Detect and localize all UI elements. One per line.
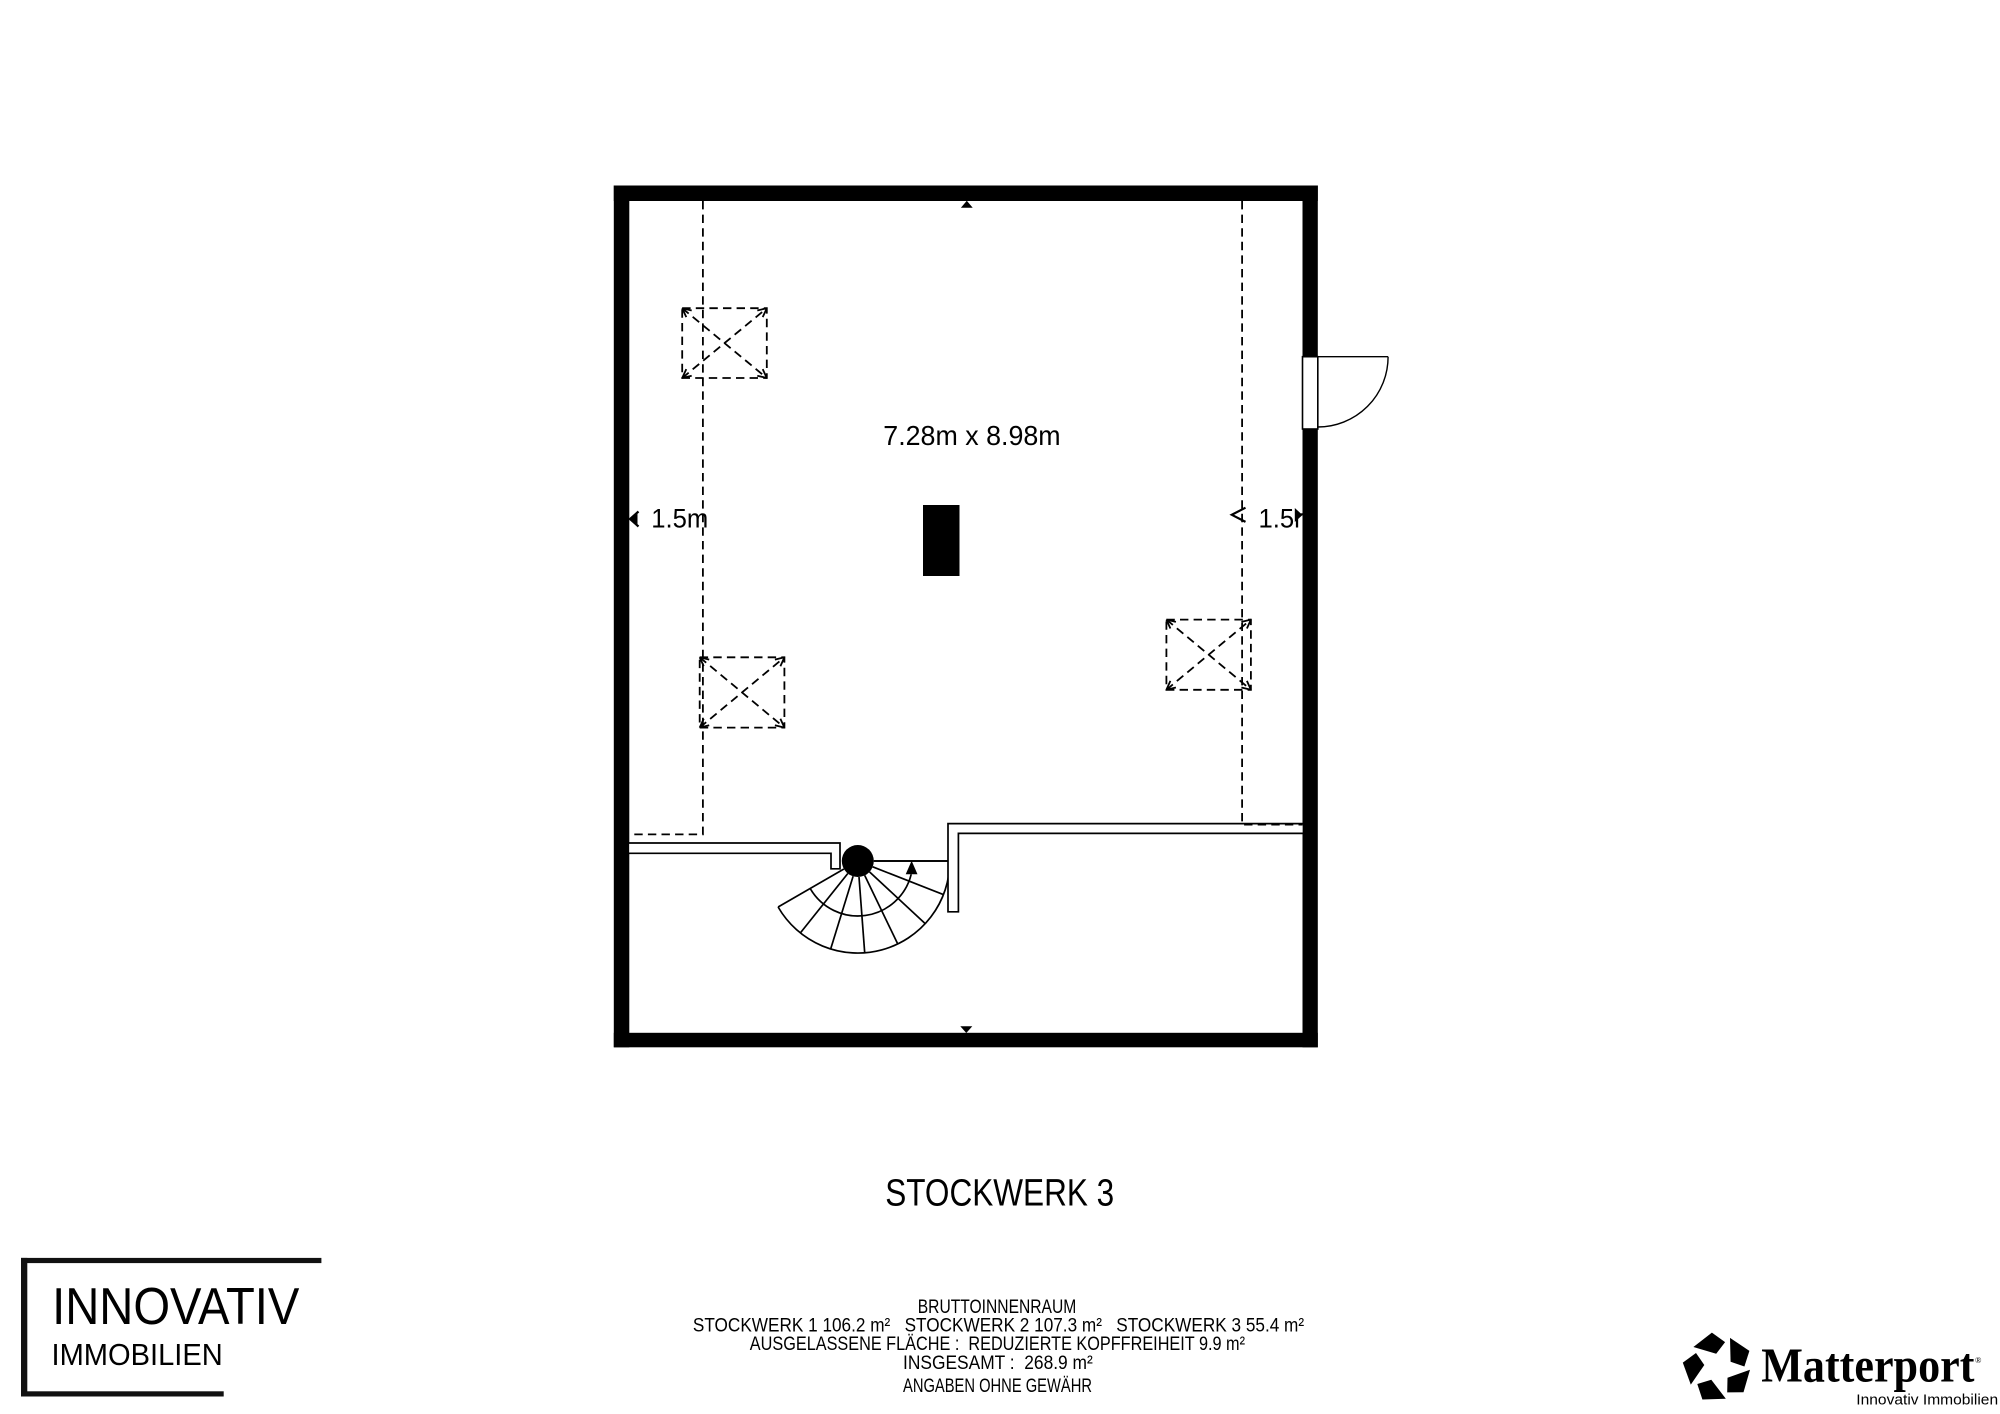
svg-text:INSGESAMT : 268.9 m²: INSGESAMT : 268.9 m²	[903, 1353, 1093, 1374]
svg-text:STOCKWERK 3: STOCKWERK 3	[885, 1173, 1114, 1215]
svg-text:Innovativ Immobilien: Innovativ Immobilien	[1856, 1392, 1998, 1408]
svg-text:1.5m: 1.5m	[651, 502, 708, 533]
svg-text:®: ®	[1975, 1355, 1982, 1365]
svg-text:Matterport: Matterport	[1761, 1339, 1974, 1392]
svg-text:7.28m x 8.98m: 7.28m x 8.98m	[883, 420, 1060, 451]
svg-text:ANGABEN OHNE GEWÄHR: ANGABEN OHNE GEWÄHR	[903, 1376, 1092, 1397]
svg-text:IMMOBILIEN: IMMOBILIEN	[52, 1338, 223, 1372]
svg-text:INNOVATIV: INNOVATIV	[52, 1277, 300, 1335]
